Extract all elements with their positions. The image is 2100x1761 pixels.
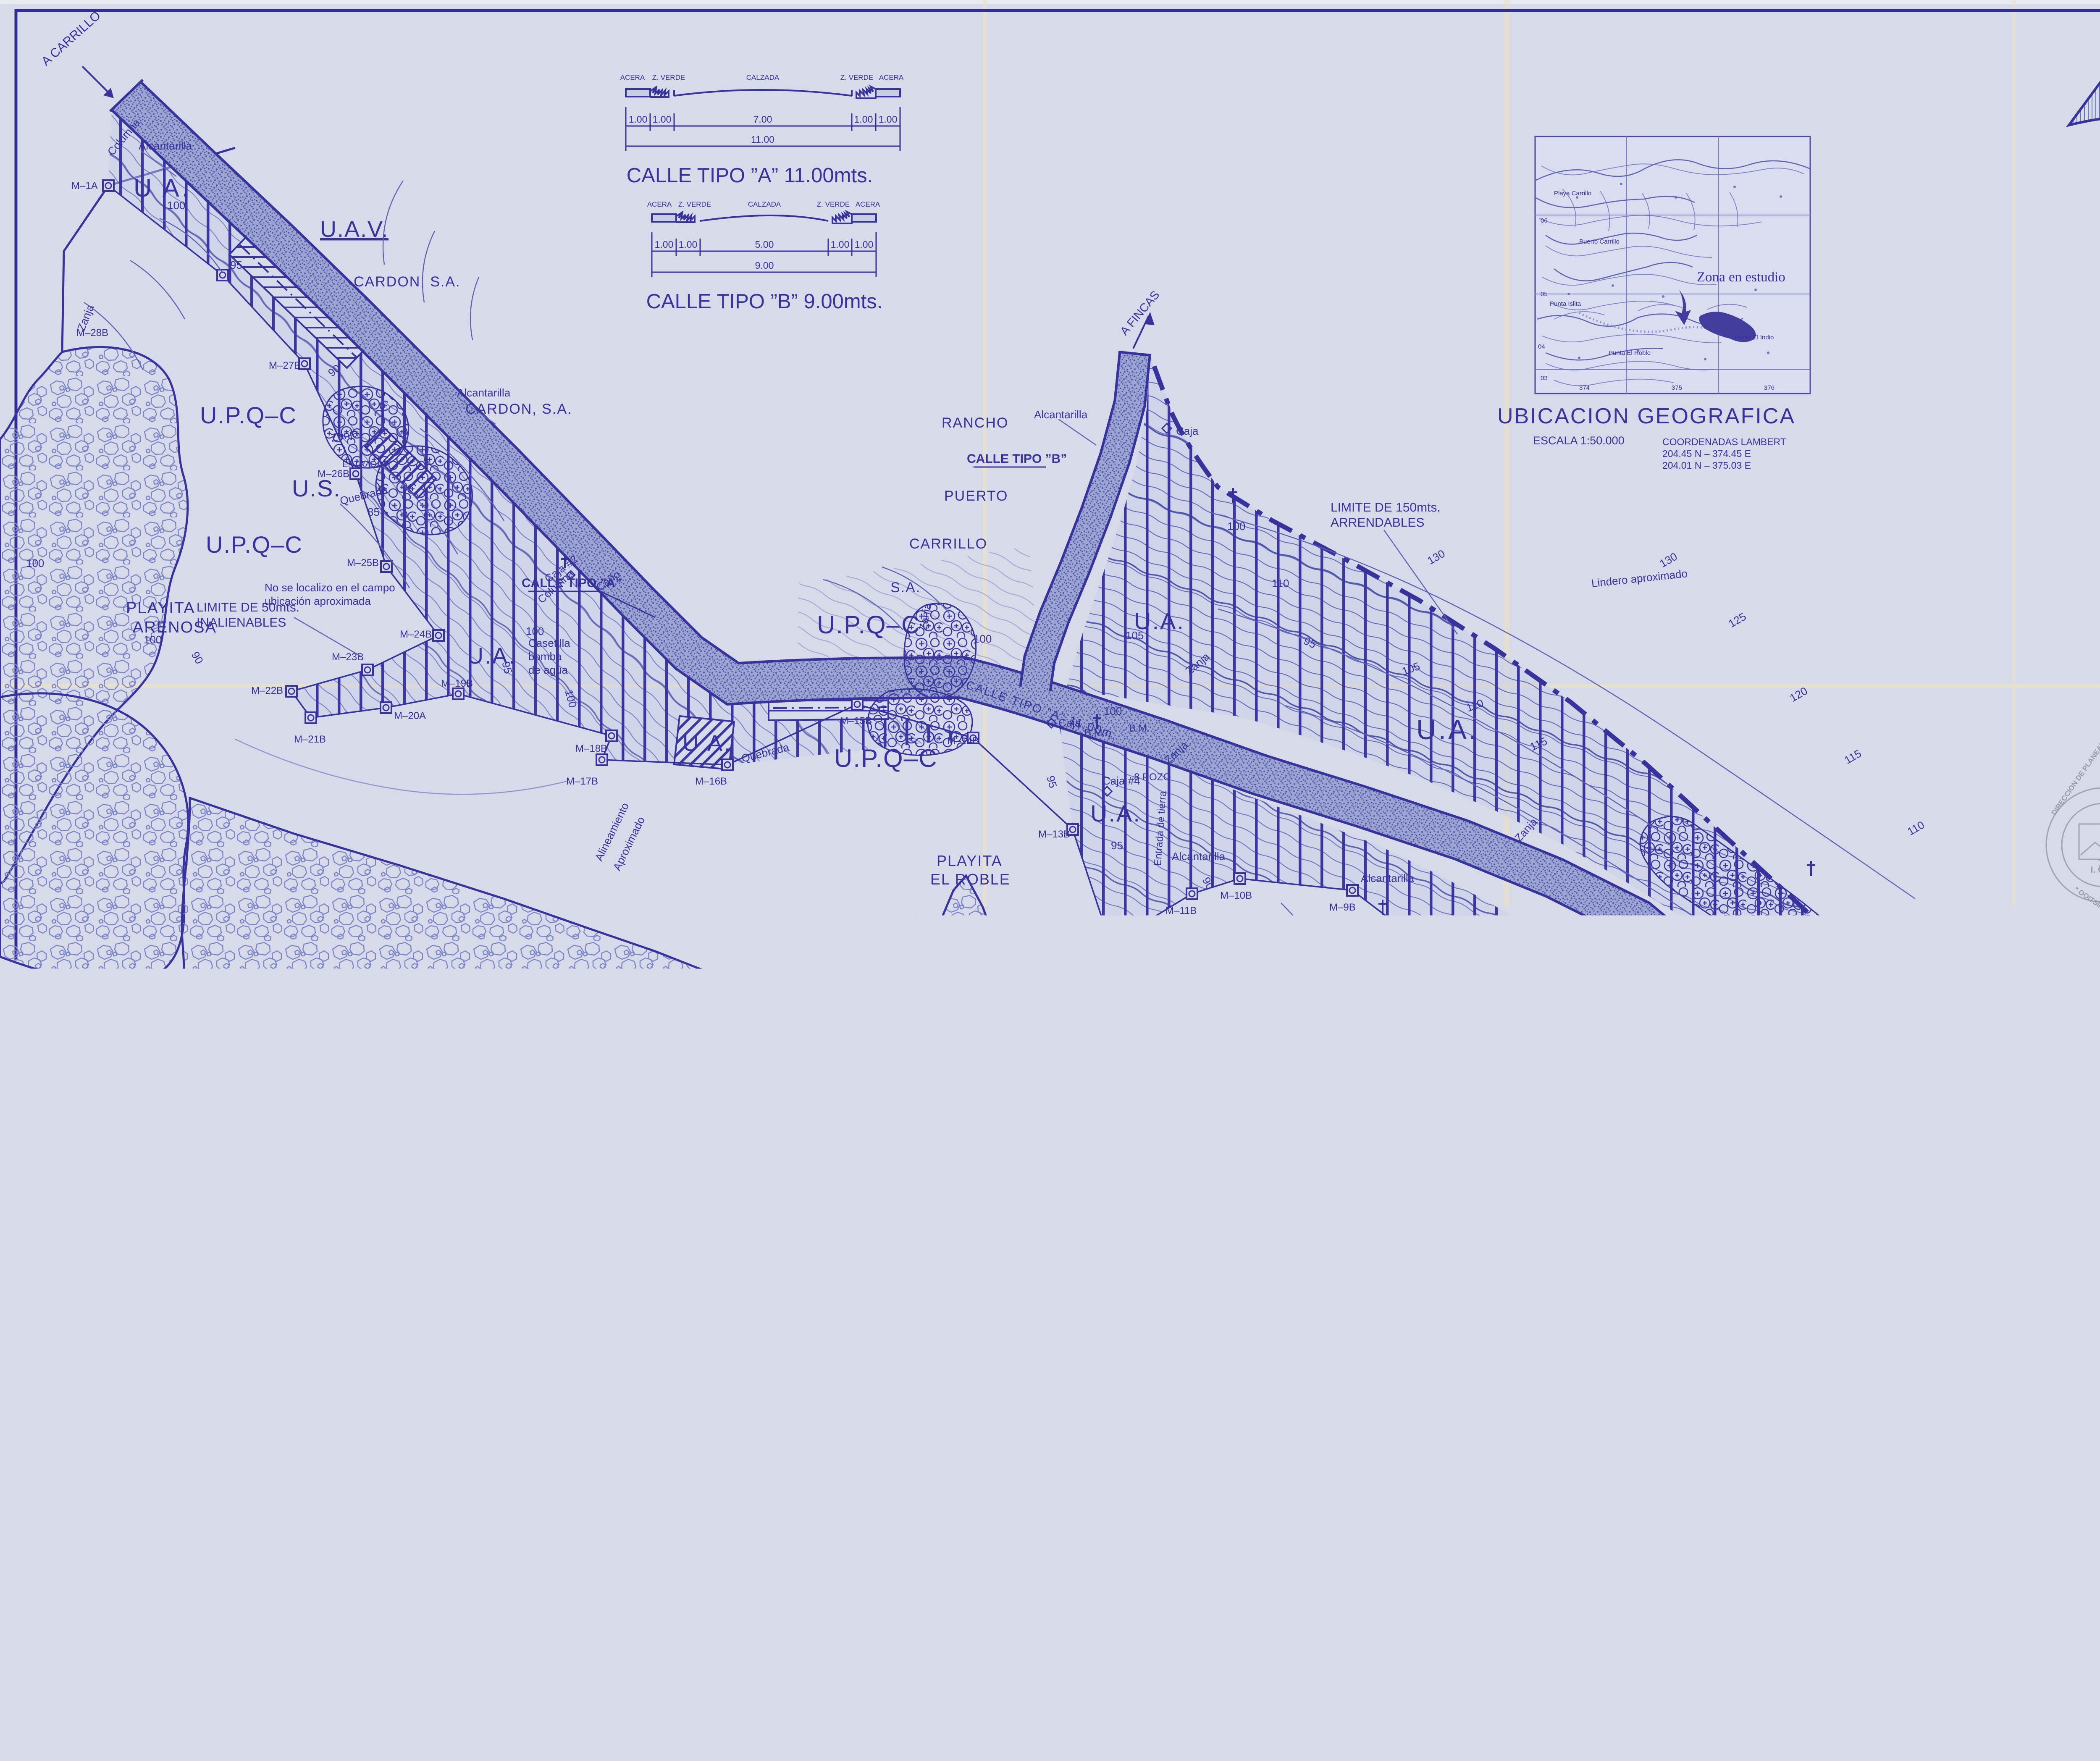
svg-text:1.00: 1.00 [679, 239, 698, 250]
svg-text:M–15B: M–15B [840, 715, 872, 727]
svg-text:M–10B: M–10B [1220, 890, 1252, 901]
svg-text:0.84%: 0.84% [1186, 1426, 1221, 1440]
svg-text:CALLE TIPO ”A” 11.00mts.: CALLE TIPO ”A” 11.00mts. [627, 164, 873, 187]
svg-text:B.M.: B.M. [1129, 723, 1150, 734]
svg-text:U.P.Q–C: U.P.Q–C [206, 531, 303, 558]
svg-text:Punta El Roble: Punta El Roble [1609, 349, 1651, 357]
svg-text:0.028: 0.028 [1098, 1524, 1129, 1538]
svg-text:U.A.: U.A. [1557, 1039, 1602, 1063]
svg-text:100: 100 [1104, 705, 1122, 717]
svg-text:de agua: de agua [528, 664, 568, 676]
svg-text:Z. VERDE: Z. VERDE [840, 73, 873, 81]
svg-text:04: 04 [1538, 343, 1545, 350]
svg-text:95: 95 [1111, 839, 1123, 852]
svg-text:1.00: 1.00 [831, 239, 850, 250]
svg-text:PLAYITA: PLAYITA [126, 599, 195, 617]
svg-text:CALZADA: CALZADA [746, 73, 780, 81]
svg-text:U.P.Q–C: U.P.Q–C [817, 611, 920, 639]
svg-text:Alcantarilla: Alcantarilla [1034, 408, 1088, 421]
svg-text:%: % [1198, 1337, 1210, 1351]
svg-text:ENTRADA: ENTRADA [342, 460, 383, 469]
svg-text:M–13B: M–13B [1038, 829, 1070, 840]
svg-text:Alcantarilla: Alcantarilla [1651, 1020, 1704, 1032]
svg-text:CALZADA: CALZADA [748, 200, 781, 208]
svg-text:EL ROBLE: EL ROBLE [1758, 1666, 1866, 1688]
svg-text:8.57%: 8.57% [1186, 1476, 1221, 1490]
svg-text:Zanja: Zanja [2021, 1490, 2049, 1503]
svg-text:PUERTO: PUERTO [944, 488, 1008, 504]
svg-text:06: 06 [1541, 217, 1548, 224]
svg-text:M–17B: M–17B [566, 776, 598, 787]
svg-text:m2: m2 [1105, 1346, 1123, 1360]
svg-text:100: 100 [26, 557, 44, 570]
svg-text:LIMITE DE 150mts.: LIMITE DE 150mts. [2082, 925, 2100, 939]
svg-text:M–20A: M–20A [394, 710, 426, 722]
svg-text:Alcantarilla: Alcantarilla [1851, 1137, 1905, 1150]
svg-text:M–23B: M–23B [332, 651, 364, 663]
svg-text:U A.: U A. [682, 731, 732, 756]
svg-text:No se localizo en el campo: No se localizo en el campo [265, 581, 395, 594]
svg-text:Puerto Carrillo: Puerto Carrillo [1579, 238, 1620, 245]
svg-text:M–12B: M–12B [1070, 938, 1102, 949]
svg-text:ACERA: ACERA [879, 73, 904, 81]
svg-text:CARDON, S.A.: CARDON, S.A. [354, 274, 460, 290]
svg-text:0.078: 0.078 [1098, 1426, 1129, 1440]
svg-text:AREAS VERDES (U.A.V.): AREAS VERDES (U.A.V.) [853, 1426, 998, 1440]
svg-text:204.45 N – 374.45 E: 204.45 N – 374.45 E [1662, 448, 1751, 459]
svg-text:M–25B: M–25B [347, 557, 379, 569]
svg-text:M–6B: M–6B [1556, 1181, 1583, 1192]
svg-text:VEHICULAR): VEHICULAR) [878, 1578, 954, 1592]
svg-text:Alcantarilla: Alcantarilla [457, 386, 511, 399]
svg-text:11.00: 11.00 [751, 134, 774, 145]
svg-text:PUNTA: PUNTA [94, 1023, 168, 1045]
svg-text:1.083: 1.083 [1098, 1570, 1129, 1584]
svg-text:204.01 N – 375.03 E: 204.01 N – 375.03 E [1662, 460, 1751, 471]
svg-text:AREA: AREA [1097, 1331, 1131, 1345]
svg-text:100: 100 [974, 632, 992, 645]
svg-text:ACERA: ACERA [620, 73, 645, 81]
svg-text:85: 85 [367, 506, 380, 518]
svg-text:Zona en estudio: Zona en estudio [1697, 270, 1785, 285]
svg-text:OCEANO PACIFICO: OCEANO PACIFICO [521, 1376, 812, 1405]
svg-text:TABLA DE USO DEL SUELO: TABLA DE USO DEL SUELO [911, 1285, 1181, 1307]
svg-text:I. C. T.: I. C. T. [2091, 865, 2100, 875]
svg-text:Y CARCAVAS (U.P.Q-C): Y CARCAVAS (U.P.Q-C) [853, 1480, 990, 1494]
svg-text:1.00: 1.00 [854, 114, 873, 125]
svg-text:Z. VERDE: Z. VERDE [817, 200, 850, 208]
svg-text:LA CASCADA: LA CASCADA [903, 1223, 1042, 1245]
svg-text:PUNTA: PUNTA [1758, 1640, 1831, 1662]
svg-text:M–9B: M–9B [1329, 902, 1356, 913]
svg-text:Casetilla: Casetilla [528, 637, 570, 649]
svg-text:M–16B: M–16B [695, 776, 727, 787]
svg-text:M–14B: M–14B [947, 735, 979, 747]
svg-text:Caja: Caja [1176, 425, 1199, 437]
svg-text:Punta Islita: Punta Islita [1550, 300, 1581, 307]
svg-text:0.29%: 0.29% [1186, 1524, 1221, 1538]
svg-text:Cuneta: Cuneta [2022, 1416, 2055, 1427]
svg-text:M–1A: M–1A [71, 180, 98, 192]
svg-text:110: 110 [1272, 577, 1289, 590]
svg-text:100: 100 [144, 633, 162, 646]
svg-text:1.00: 1.00 [855, 239, 874, 250]
svg-text:05: 05 [1541, 291, 1548, 298]
svg-text:CALLE TIPO ”B”: CALLE TIPO ”B” [967, 452, 1067, 466]
svg-text:UBICACION GEOGRAFICA: UBICACION GEOGRAFICA [1497, 404, 1795, 428]
svg-text:ARRENDABLES: ARRENDABLES [2091, 939, 2100, 953]
svg-text:U.P.Q–C: U.P.Q–C [834, 744, 937, 772]
svg-text:EL ROBLE: EL ROBLE [930, 871, 1011, 888]
svg-text:375: 375 [1672, 384, 1682, 391]
svg-text:U.A.: U.A. [1928, 1307, 1977, 1332]
svg-text:0.802: 0.802 [1098, 1476, 1129, 1490]
svg-text:7.368: 7.368 [1098, 1382, 1129, 1396]
svg-text:M–27B: M–27B [269, 360, 301, 371]
svg-text:AGROPECUARIO (U.A.): AGROPECUARIO (U.A.) [853, 1382, 992, 1396]
svg-text:9.359: 9.359 [1098, 1616, 1129, 1630]
svg-text:376: 376 [1764, 384, 1774, 391]
svg-text:VIAL (CIRCULACION: VIAL (CIRCULACION [853, 1562, 974, 1576]
svg-text:INALIENABLES: INALIENABLES [197, 616, 286, 630]
svg-text:7.00: 7.00 [753, 114, 772, 125]
svg-text:8 POZO: 8 POZO [1134, 772, 1171, 783]
svg-text:M–7B: M–7B [1445, 1085, 1471, 1096]
svg-text:INALIENABLES: INALIENABLES [1559, 1268, 1648, 1282]
svg-text:Z. VERDE: Z. VERDE [678, 200, 711, 208]
svg-text:U.A.: U.A. [1090, 800, 1141, 827]
svg-text:M–1B: M–1B [1966, 1598, 1993, 1609]
svg-text:M–22B: M–22B [251, 685, 283, 696]
svg-text:M–24B: M–24B [400, 629, 432, 640]
svg-text:M–19B: M–19B [441, 678, 473, 689]
svg-text:11.58%: 11.58% [1183, 1570, 1225, 1584]
svg-text:ACERA: ACERA [647, 200, 672, 208]
svg-text:CALLE TIPO ”B” 9.00mts.: CALLE TIPO ”B” 9.00mts. [646, 290, 883, 313]
svg-text:PROTECCION DE QUEBRADAS: PROTECCION DE QUEBRADAS [853, 1464, 1040, 1478]
svg-text:Alcantarilla: Alcantarilla [1172, 850, 1226, 863]
svg-text:S.A.: S.A. [890, 580, 921, 596]
svg-text:Z. VERDE: Z. VERDE [652, 73, 685, 81]
svg-text:2: 2 [1139, 1656, 1151, 1681]
svg-text:105: 105 [1126, 629, 1144, 642]
svg-text:TOTAL: TOTAL [853, 1616, 892, 1630]
svg-text:374: 374 [1579, 384, 1590, 391]
svg-text:95: 95 [230, 259, 242, 271]
svg-text:SENDEROS (U.S): SENDEROS (U.S) [853, 1524, 956, 1538]
svg-text:Alcantarilla: Alcantarilla [139, 139, 192, 152]
svg-text:LIMITE DE 150mts.: LIMITE DE 150mts. [1331, 501, 1441, 514]
svg-text:ARRENDABLES: ARRENDABLES [1331, 516, 1424, 530]
svg-text:bomba: bomba [528, 650, 562, 663]
svg-text:CARRILLO: CARRILLO [909, 536, 987, 552]
svg-text:Alcantarilla: Alcantarilla [1361, 872, 1415, 884]
svg-text:100: 100 [526, 625, 544, 638]
svg-text:M–8B: M–8B [1402, 972, 1428, 984]
svg-text:04: 04 [1154, 1666, 1171, 1683]
svg-text:03: 03 [1541, 375, 1548, 382]
svg-text:ACERA: ACERA [856, 200, 880, 208]
svg-text:Playa Carrillo: Playa Carrillo [1554, 190, 1591, 197]
svg-text:RANCHO: RANCHO [942, 415, 1008, 431]
svg-text:ESCALA 1:50.000: ESCALA 1:50.000 [1533, 434, 1625, 447]
svg-text:U.A.: U.A. [1416, 714, 1478, 745]
svg-text:5.00: 5.00 [755, 239, 774, 250]
svg-text:M–3B: M–3B [1866, 1365, 1892, 1377]
svg-text:Muro: Muro [1724, 1247, 1747, 1258]
svg-text:U.A.V.: U.A.V. [320, 217, 388, 242]
svg-text:ubicación aproximada: ubicación aproximada [265, 595, 371, 607]
svg-text:PLAYITA: PLAYITA [937, 852, 1003, 869]
svg-text:M–5B: M–5B [1664, 1218, 1690, 1230]
svg-text:1.00: 1.00 [655, 239, 674, 250]
svg-text:M–11B: M–11B [1165, 905, 1197, 916]
svg-text:M–18B: M–18B [575, 743, 607, 754]
svg-text:U.S.: U.S. [292, 475, 341, 501]
svg-text:75: 75 [1108, 1718, 1125, 1735]
svg-text:1.00: 1.00 [629, 114, 648, 125]
svg-text:Punta El Indio: Punta El Indio [1735, 334, 1774, 341]
svg-text:U.P.Q–C: U.P.Q–C [200, 402, 297, 428]
svg-text:3: 3 [1092, 1711, 1104, 1735]
svg-text:M–2B: M–2B [1926, 1476, 1952, 1488]
svg-text:9.00: 9.00 [755, 260, 774, 271]
svg-text:78.8%: 78.8% [1186, 1382, 1221, 1396]
svg-text:M–21B: M–21B [294, 734, 326, 745]
svg-text:100: 100 [167, 199, 185, 212]
svg-text:1.00: 1.00 [653, 114, 672, 125]
svg-text:1.00: 1.00 [879, 114, 898, 125]
svg-text:COORDENADAS LAMBERT: COORDENADAS LAMBERT [1662, 436, 1786, 447]
svg-text:100%: 100% [1188, 1616, 1220, 1630]
svg-text:U A.: U A. [134, 174, 191, 202]
svg-text:USOS: USOS [912, 1336, 948, 1350]
